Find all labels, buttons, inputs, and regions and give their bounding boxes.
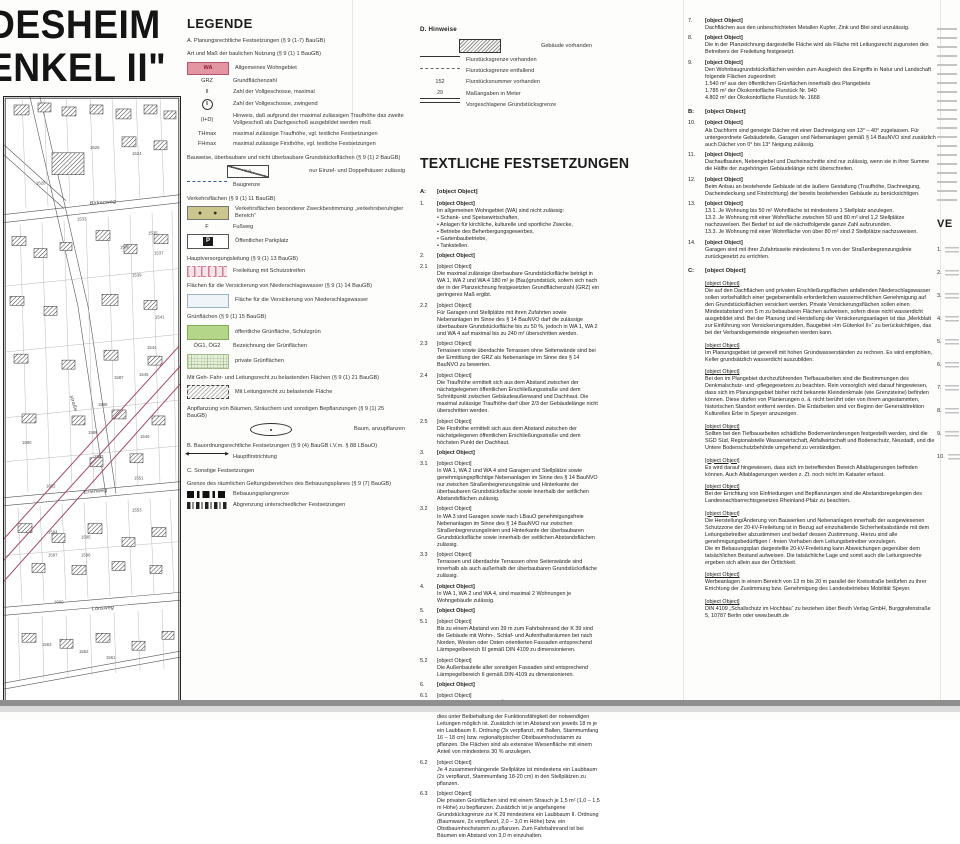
parcel-number-label: 1533 (77, 217, 87, 222)
legend-entry-label: Flurstücksnummer vorhanden (466, 79, 540, 86)
legend-symbol-text: FHmax (198, 141, 216, 148)
text-section: [object Object]Im Planungsgebiet ist gen… (688, 343, 936, 364)
text-section: [object Object]DIN 4109 „Schallschutz im… (688, 599, 936, 620)
section-title: [object Object] (437, 760, 600, 767)
edge-list-item: 8. (937, 408, 960, 414)
text-section: [object Object]Die auf den Dachflächen u… (688, 281, 936, 337)
plan-title-line1: DESHEIM (0, 4, 166, 47)
section-number: 2.3 (420, 341, 437, 369)
legend-entry-label: Hinweis, daß aufgrund der maximal zuläss… (233, 113, 405, 127)
parcel-number-label: 1588 (98, 402, 108, 407)
legend-entry: Flächen für die Versickerung von Nieders… (187, 283, 405, 290)
parcel-number-label: 1553 (132, 508, 142, 513)
text-section: 6.2 [object Object]Je 4 zusammenhängende… (420, 760, 600, 788)
section-body: [object Object]Terrassen und überdachte … (437, 552, 600, 580)
section-title: [object Object] (437, 264, 600, 271)
section-body: [object Object]Die in der Planzeichnung … (705, 35, 936, 56)
legend-entry-label: C. Sonstige Festsetzungen (187, 468, 254, 474)
legend-symbol-text: 29 (437, 90, 443, 96)
legend-symbol-text: II (205, 89, 208, 96)
section-text: Für Garagen und Stellplätze mit ihren Zu… (437, 310, 598, 337)
legend-entry: P Öffentlicher Parkplatz (187, 234, 405, 249)
section-number: 1. (420, 201, 437, 250)
einzel-doppelhaus-icon: E D (227, 165, 269, 178)
parcel-number-label: 1524 (132, 151, 142, 156)
legend-entry-label: Art und Maß der baulichen Nutzung (§ 9 (… (187, 51, 321, 57)
section-number: B: (688, 109, 705, 117)
illegible-text-bar (945, 316, 959, 322)
edge-list-item: 5. (937, 339, 960, 345)
section-number: 4. (420, 584, 437, 605)
legend-entry-label: Fußweg (233, 224, 253, 231)
edge-item-number: 6. (937, 362, 942, 368)
text-section: [object Object]Bei der Errichtung von Ei… (688, 484, 936, 505)
illegible-text-bar (945, 270, 959, 276)
section-title: [object Object] (705, 120, 936, 127)
legend-entry: II Zahl der Vollgeschosse, zwingend (187, 99, 405, 110)
section-title: [object Object] (437, 608, 600, 615)
section-body: [object Object]Dachaufbauten, Nebengiebe… (705, 152, 936, 173)
section-text: Im Planungsgebiet ist generell mit hohen… (705, 350, 932, 363)
text-section: 5. [object Object] (420, 608, 600, 615)
baugrenze-line-icon (187, 181, 227, 189)
legend-entry-label: öffentliche Grünfläche, Schutzgrün (235, 329, 321, 336)
legend-entry-label: Abgrenzung unterschiedlicher Festsetzung… (233, 502, 345, 509)
parcel-number-label: 1549 (140, 434, 150, 439)
section-title: [object Object] (437, 584, 600, 591)
section-number (688, 281, 705, 337)
section-text: Sollten bei den Tiefbauarbeiten schädlic… (705, 431, 934, 451)
versickerungsflaeche-swatch-icon (187, 294, 229, 308)
legend-entry: GRZ Grundflächenzahl (187, 78, 405, 85)
section-number: 11. (688, 152, 705, 173)
section-body: [object Object]Die privaten Grünflächen … (437, 791, 600, 840)
section-number: 3. (420, 450, 437, 457)
legend-entry: öffentliche Grünfläche, Schutzgrün (187, 325, 405, 340)
section-body: [object Object]In WA 3 sind Garagen sowi… (437, 506, 600, 548)
edge-list-item: 6. (937, 362, 960, 368)
legend-entry-label: Öffentlicher Parkplatz (235, 238, 288, 245)
section-title: [object Object] (437, 658, 600, 665)
legend-symbol-text: GRZ (201, 78, 213, 85)
section-title: [object Object] (705, 281, 936, 288)
section-number (688, 343, 705, 364)
section-title: [object Object] (437, 419, 600, 426)
section-title: [object Object] (705, 201, 936, 208)
parcel-number-label: 1535 (148, 231, 158, 236)
text-section: 12. [object Object]Beim Anbau an bestehe… (688, 177, 936, 198)
text-section: 9. [object Object]Den Wohnbaugrundstücks… (688, 60, 936, 102)
text-section: 11. [object Object]Dachaufbauten, Nebeng… (688, 152, 936, 173)
massangabe-arrow-icon: 29 (420, 90, 460, 99)
section-number (688, 424, 705, 452)
section-title: [object Object] (705, 60, 936, 67)
text-section: 7. [object Object]Dachflächen aus den un… (688, 18, 936, 32)
text-section: 3.1 [object Object]In WA 1, WA 2 und WA … (420, 461, 600, 503)
legend-symbol-text: II (202, 99, 213, 110)
section-number: 14. (688, 240, 705, 261)
legend-entry: Verkehrsflächen (§ 9 (1) 11 BauGB) (187, 196, 405, 203)
parcel-number-label: 1545 (139, 372, 149, 377)
parcel-number-label: 1563 (42, 642, 52, 647)
section-text: Terrassen sowie überdachte Terrassen ohn… (437, 348, 596, 368)
section-title: [object Object] (437, 506, 600, 513)
section-number (688, 369, 705, 418)
legend-symbol-text: P (203, 237, 212, 247)
section-number: 2. (420, 253, 437, 260)
section-number: A: (420, 189, 437, 197)
edge-list-item: 1. (937, 247, 960, 253)
legend-entry: Grünflächen (§ 9 (1) 15 BauGB) (187, 314, 405, 321)
legend-entry: B. Bauordnungsrechtliche Festsetzungen (… (187, 443, 405, 450)
section-text: Werbeanlagen in einem Bereich von 13 m b… (705, 579, 927, 592)
section-title: [object Object] (437, 682, 600, 689)
section-title: [object Object] (437, 791, 600, 798)
section-number: 2.5 (420, 419, 437, 447)
text-section: 4. [object Object]In WA 1, WA 2 und WA 4… (420, 584, 600, 605)
legend-entry-label: Bebauungsplangrenze (233, 491, 289, 498)
section-body: [object Object] (437, 608, 600, 615)
legend-entry: Grenze des räumlichen Geltungsbereiches … (187, 481, 405, 488)
legend-entry-label: Hauptfirstrichtung (233, 454, 277, 461)
legend-entry: Art und Maß der baulichen Nutzung (§ 9 (… (187, 51, 405, 58)
legend-entry: Verkehrsflächen besonderer Zweckbestimmu… (187, 206, 405, 220)
section-body: [object Object]Sollten bei den Tiefbauar… (705, 424, 936, 452)
section-text: Garagen sind mit ihrer Zufahrtsseite min… (705, 247, 911, 260)
text-section: A: [object Object] (420, 189, 600, 197)
edge-item-number: 1. (937, 247, 942, 253)
section-number: C: (688, 268, 705, 276)
legend-entry-label: maximal zulässige Traufhöhe, vgl. textli… (233, 131, 378, 138)
section-text: Die Traufhöhe ermittelt sich aus dem Abs… (437, 380, 598, 414)
legend-entry: Vorgeschlagene Grundstücksgrenze (420, 102, 592, 110)
section-text: Terrassen und überdachte Terrassen ohne … (437, 559, 597, 579)
section-number: 7. (688, 18, 705, 32)
section-text: Als Dachform sind geneigte Dächer mit ei… (705, 128, 936, 148)
section-number: 3.2 (420, 506, 437, 548)
section-title: [object Object] (705, 424, 936, 431)
legend-entry: Hauptfirstrichtung (187, 453, 405, 461)
text-section: 2. [object Object] (420, 253, 600, 260)
legend-entry-label: Verkehrsflächen (§ 9 (1) 11 BauGB) (187, 196, 276, 202)
plan-title-line2: ENKEL II" (0, 47, 166, 90)
text-section: [object Object]Es wird darauf hingewiese… (688, 458, 936, 479)
section-body: [object Object]In WA 1, WA 2 und WA 4, s… (437, 584, 600, 605)
legend-entry-label: Baugrenze (233, 182, 260, 189)
legend-entry-label: Fläche für die Versickerung von Niedersc… (235, 297, 368, 304)
section-number (688, 572, 705, 593)
parkplatz-icon: P (187, 234, 229, 249)
oeffentliche-gruenflaeche-swatch-icon (187, 325, 229, 340)
section-number: 2.1 (420, 264, 437, 299)
section-title: [object Object] (437, 693, 600, 700)
scanned-plan-sheet: DESHEIM ENKEL II" (0, 0, 960, 720)
legend-entry: private Grünflächen (187, 354, 405, 369)
legend-entry: Fläche für die Versickerung von Niedersc… (187, 294, 405, 308)
parcel-number-label: 1561 (106, 655, 116, 660)
section-title: [object Object] (705, 599, 936, 606)
parcel-number-label: 1562 (79, 649, 89, 654)
edge-list-item: 3. (937, 293, 960, 299)
section-text: Im allgemeinen Wohngebiet (WA) sind nich… (437, 208, 573, 249)
legend-entry: Baugrenze (187, 181, 405, 189)
gruenflaechen-bezeichnung-symbol: ÖG1, ÖG2 (187, 343, 227, 350)
text-section: 8. [object Object]Die in der Planzeichnu… (688, 35, 936, 56)
section-number: 9. (688, 60, 705, 102)
cadastral-map-svg: BirkenwegstraßeErlenwegLönsweg1628152415… (4, 97, 180, 705)
gebaeude-vorhanden-icon (459, 39, 501, 53)
legend-entry: Flurstücksgrenze entfallend (420, 68, 592, 76)
legend-entry-label: Freileitung mit Schutzstreifen (233, 268, 305, 275)
private-gruenflaeche-swatch-icon (187, 354, 229, 369)
section-title: [object Object] (437, 341, 600, 348)
section-title: [object Object] (705, 343, 936, 350)
parcel-number-label: 1551 (134, 476, 144, 481)
section-number: 13. (688, 201, 705, 236)
section-title: [object Object] (705, 35, 936, 42)
legend-entry: A. Planungsrechtliche Festsetzungen (§ 9… (187, 38, 405, 45)
section-number: 6. (420, 682, 437, 689)
edge-item-number: 2. (937, 270, 942, 276)
legend-entry-label: Flurstücksgrenze vorhanden (466, 57, 537, 64)
section-body: [object Object]Die Außenbauteile aller s… (437, 658, 600, 679)
section-title: [object Object] (437, 253, 600, 260)
edge-list-item: 4. (937, 316, 960, 322)
section-body: [object Object]Die Traufhöhe ermittelt s… (437, 373, 600, 415)
text-section: 3.3 [object Object]Terrassen und überdac… (420, 552, 600, 580)
edge-item-number: 4. (937, 316, 942, 322)
legend-entry: Mit Leitungsrecht zu belastende Fläche (187, 385, 405, 399)
legend-entry: 152 Flurstücksnummer vorhanden (420, 79, 592, 86)
section-text: Bei der Errichtung von Einfriedungen und… (705, 491, 922, 504)
section-text: Bis zu einem Abstand von 39 m zum Fahrba… (437, 626, 593, 653)
section-title: [object Object] (705, 109, 936, 117)
legend-symbol-text: 152 (435, 79, 444, 86)
parcel-number-label: 1539 (132, 272, 142, 277)
section-text: Den Wohnbaugrundstücksflächen werden zum… (705, 67, 931, 101)
illegible-text-bar (945, 431, 959, 437)
section-body: [object Object]Die Firsthöhe ermittelt s… (437, 419, 600, 447)
section-number (688, 458, 705, 479)
legend-hints-heading: D. Hinweise (420, 26, 592, 33)
legend-entry: Baum, anzupflanzen (187, 423, 405, 436)
legend-entry-label: B. Bauordnungsrechtliche Festsetzungen (… (187, 443, 377, 449)
section-text: Je 4 zusammenhängende Stellplätze ist mi… (437, 767, 597, 787)
edge-list-item: 10. (937, 454, 960, 460)
section-body: [object Object]Als Dachform sind geneigt… (705, 120, 936, 148)
legend-entry: Gebäude vorhanden (420, 39, 592, 53)
text-section: 14. [object Object]Garagen sind mit ihre… (688, 240, 936, 261)
leitungsrecht-flaeche-swatch-icon (187, 385, 229, 399)
legend-entry-label: Gebäude vorhanden (541, 43, 592, 50)
parcel-number-label: 1526 (90, 145, 100, 150)
section-number: 6.3 (420, 791, 437, 840)
legend-entry: Abgrenzung unterschiedlicher Festsetzung… (187, 502, 405, 509)
section-text: 13.1. Je Wohnung bis 50 m² Wohnfläche is… (705, 208, 918, 235)
section-title: [object Object] (705, 177, 936, 184)
text-section: 5.1 [object Object]Bis zu einem Abstand … (420, 619, 600, 654)
section-body: [object Object]Bei der Errichtung von Ei… (705, 484, 936, 505)
edge-list-item: 7. (937, 385, 960, 391)
section-body: [object Object]Im Planungsgebiet ist gen… (705, 343, 936, 364)
festsetzungen-column: A: [object Object] 1. [object Object]Im … (420, 182, 600, 844)
parcel-number-label: 1587 (114, 375, 124, 380)
legend-entry: Bauweise, überbaubare und nicht überbaub… (187, 155, 405, 162)
site-plan-map: BirkenwegstraßeErlenwegLönsweg1628152415… (3, 96, 181, 706)
section-title: [object Object] (437, 450, 600, 457)
section-text: Die Firsthöhe ermittelt sich aus dem Abs… (437, 426, 580, 446)
section-title: [object Object] (437, 189, 600, 197)
parcel-number-label: 1589 (88, 430, 98, 435)
edge-item-number: 7. (937, 385, 942, 391)
legend-entry: E D nur Einzel- und Doppelhäuser zulässi… (187, 165, 405, 178)
section-title: [object Object] (437, 201, 600, 208)
section-text: Die in der Planzeichnung dargestellte Fl… (705, 42, 929, 55)
traufhoehe-symbol: THmax (187, 131, 227, 138)
grz-symbol: GRZ (187, 78, 227, 85)
section-title: [object Object] (437, 303, 600, 310)
section-text: Dachflächen aus den unbeschichteten Meta… (705, 25, 909, 31)
flurstuecksgrenze-line-icon (420, 56, 460, 64)
legend-entry: (I+D) Hinweis, daß aufgrund der maximal … (187, 113, 405, 127)
section-body: [object Object] (437, 450, 600, 457)
legend-entry-label: Zahl der Vollgeschosse, zwingend (233, 101, 318, 108)
text-section: 2.1 [object Object]Die maximal zulässige… (420, 264, 600, 299)
text-section: 2.4 [object Object]Die Traufhöhe ermitte… (420, 373, 600, 415)
legend-hints-panel: D. Hinweise Gebäude vorhanden Flurstücks… (420, 26, 592, 113)
illegible-text-bar (945, 362, 959, 368)
section-number: 3.3 (420, 552, 437, 580)
legend-entry: F Fußweg (187, 224, 405, 231)
parcel-number-label: 1602 (46, 484, 56, 489)
legend-entry-label: Grünflächen (§ 9 (1) 15 BauGB) (187, 314, 266, 320)
flurstuecksnummer-symbol: 152 (420, 79, 460, 86)
section-text: Beim Anbau an bestehende Gebäude ist die… (705, 184, 921, 197)
section-number: 2.2 (420, 303, 437, 338)
edge-item-number: 3. (937, 293, 942, 299)
legend-entry: FHmax maximal zulässige Firsthöhe, vgl. … (187, 141, 405, 148)
section-text: In WA 1, WA 2 und WA 4, sind maximal 2 W… (437, 591, 571, 604)
legend-entry: Hauptversorgungsleitung (§ 9 (1) 13 BauG… (187, 256, 405, 263)
section-title: [object Object] (437, 552, 600, 559)
section-number: 10. (688, 120, 705, 148)
verkehrsberuhigter-bereich-swatch-icon (187, 206, 229, 220)
legend-entry: Mit Geh- Fahr- und Leitungsrecht zu bela… (187, 375, 405, 382)
section-number: 3.1 (420, 461, 437, 503)
illegible-text-bar (945, 408, 959, 414)
legend-entry-label: Maßangaben in Meter (466, 91, 521, 98)
section-body: [object Object]Die maximal zulässige übe… (437, 264, 600, 299)
illegible-text-bar (948, 454, 960, 460)
section-number (688, 484, 705, 505)
flurstuecksgrenze-entfallend-line-icon (420, 68, 460, 76)
section-body: [object Object]Dachflächen aus den unbes… (705, 18, 936, 32)
section-body: [object Object]Garagen sind mit ihrer Zu… (705, 240, 936, 261)
text-section: [object Object]Sollten bei den Tiefbauar… (688, 424, 936, 452)
legend-entry-label: Bauweise, überbaubare und nicht überbaub… (187, 155, 400, 161)
legend-entry-label: Verkehrsflächen besonderer Zweckbestimmu… (235, 206, 405, 220)
edge-item-number: 10. (937, 454, 945, 460)
legend-entry-label: Anpflanzung von Bäumen, Sträuchern und s… (187, 406, 384, 419)
section-title: [object Object] (705, 484, 936, 491)
section-number: 12. (688, 177, 705, 198)
section-title: [object Object] (705, 458, 936, 465)
dachgeschoss-hinweis-symbol: (I+D) (187, 117, 227, 124)
section-title: [object Object] (705, 268, 936, 276)
text-section: 10. [object Object]Als Dachform sind gen… (688, 120, 936, 148)
edge-item-number: 9. (937, 431, 942, 437)
text-section: [object Object]Werbeanlagen in einem Ber… (688, 572, 936, 593)
illegible-text-bar (945, 339, 959, 345)
section-text: Die privaten Grünflächen sind mit einem … (437, 798, 600, 839)
section-text: Es wird darauf hingewiesen, dass sich im… (705, 465, 918, 478)
legend-entry-label: Zahl der Vollgeschosse, maximal (233, 89, 315, 96)
verfahrensvermerke-heading: VE (937, 218, 960, 230)
edge-item-number: 8. (937, 408, 942, 414)
vollgeschosse-maximal-symbol: II (187, 89, 227, 96)
legend-symbol-text: (I+D) (201, 117, 214, 124)
section-body: [object Object]13.1. Je Wohnung bis 50 m… (705, 201, 936, 236)
section-body: [object Object] (437, 682, 600, 689)
section-number: 2.4 (420, 373, 437, 415)
legend-entry-label: Bezeichnung der Grünflächen (233, 343, 307, 350)
legend-entry: Flurstücksgrenze vorhanden (420, 56, 592, 64)
legend-entry: II Zahl der Vollgeschosse, maximal (187, 89, 405, 96)
section-body: [object Object] (437, 189, 600, 197)
section-title: [object Object] (705, 240, 936, 247)
legend-entry-label: Mit Leitungsrecht zu belastende Fläche (235, 389, 332, 396)
legend-symbol-text: THmax (198, 131, 216, 138)
section-title: [object Object] (705, 511, 936, 518)
section-body: [object Object]Die Herstellung/Änderung … (705, 511, 936, 567)
legend-entry-label: private Grünflächen (235, 358, 284, 365)
abgrenzung-line-icon (187, 502, 227, 509)
parcel-number-label: 1541 (155, 314, 165, 319)
legend-entry-label: Mit Geh- Fahr- und Leitungsrecht zu bela… (187, 375, 379, 381)
illegible-text-block (937, 28, 957, 206)
section-title: [object Object] (705, 572, 936, 579)
legend-entry-label: nur Einzel- und Doppelhäuser zulässig (309, 168, 405, 175)
section-number: 6.2 (420, 760, 437, 788)
section-body: [object Object]Werbeanlagen in einem Ber… (705, 572, 936, 593)
edge-list-item: 9. (937, 431, 960, 437)
parcel-number-label: 1590 (22, 440, 32, 445)
legend-symbol-text: ÖG1, ÖG2 (194, 343, 221, 350)
section-body: [object Object]Bei den im Plangebiet dur… (705, 369, 936, 418)
legend-entry-label: maximal zulässige Firsthöhe, vgl. textli… (233, 141, 376, 148)
illegible-text-bar (945, 247, 959, 253)
section-number: 5.2 (420, 658, 437, 679)
section-body: [object Object]Die auf den Dachflächen u… (705, 281, 936, 337)
section-body: [object Object]Den Wohnbaugrundstücksflä… (705, 60, 936, 102)
grundstuecksgrenze-line-icon (420, 102, 460, 110)
firsthoehe-symbol: FHmax (187, 141, 227, 148)
baum-anpflanzen-icon (250, 423, 292, 436)
text-section: 13. [object Object]13.1. Je Wohnung bis … (688, 201, 936, 236)
illegible-text-bar (945, 293, 959, 299)
section-text: DIN 4109 „Schallschutz im Hochbau“ zu be… (705, 606, 931, 619)
section-body: [object Object]DIN 4109 „Schallschutz im… (705, 599, 936, 620)
section-title: [object Object] (437, 619, 600, 626)
text-section: 1. [object Object]Im allgemeinen Wohngeb… (420, 201, 600, 250)
legend-entry-label: Flurstücksgrenze entfallend (466, 68, 534, 75)
parcel-number-label: 1596 (81, 552, 91, 557)
illegible-text-bar (945, 385, 959, 391)
legend-heading: LEGENDE (187, 16, 405, 31)
section-body: [object Object]Bis zu einem Abstand von … (437, 619, 600, 654)
section-body: [object Object]Terrassen sowie überdacht… (437, 341, 600, 369)
legend-entry: Bebauungsplangrenze (187, 491, 405, 498)
